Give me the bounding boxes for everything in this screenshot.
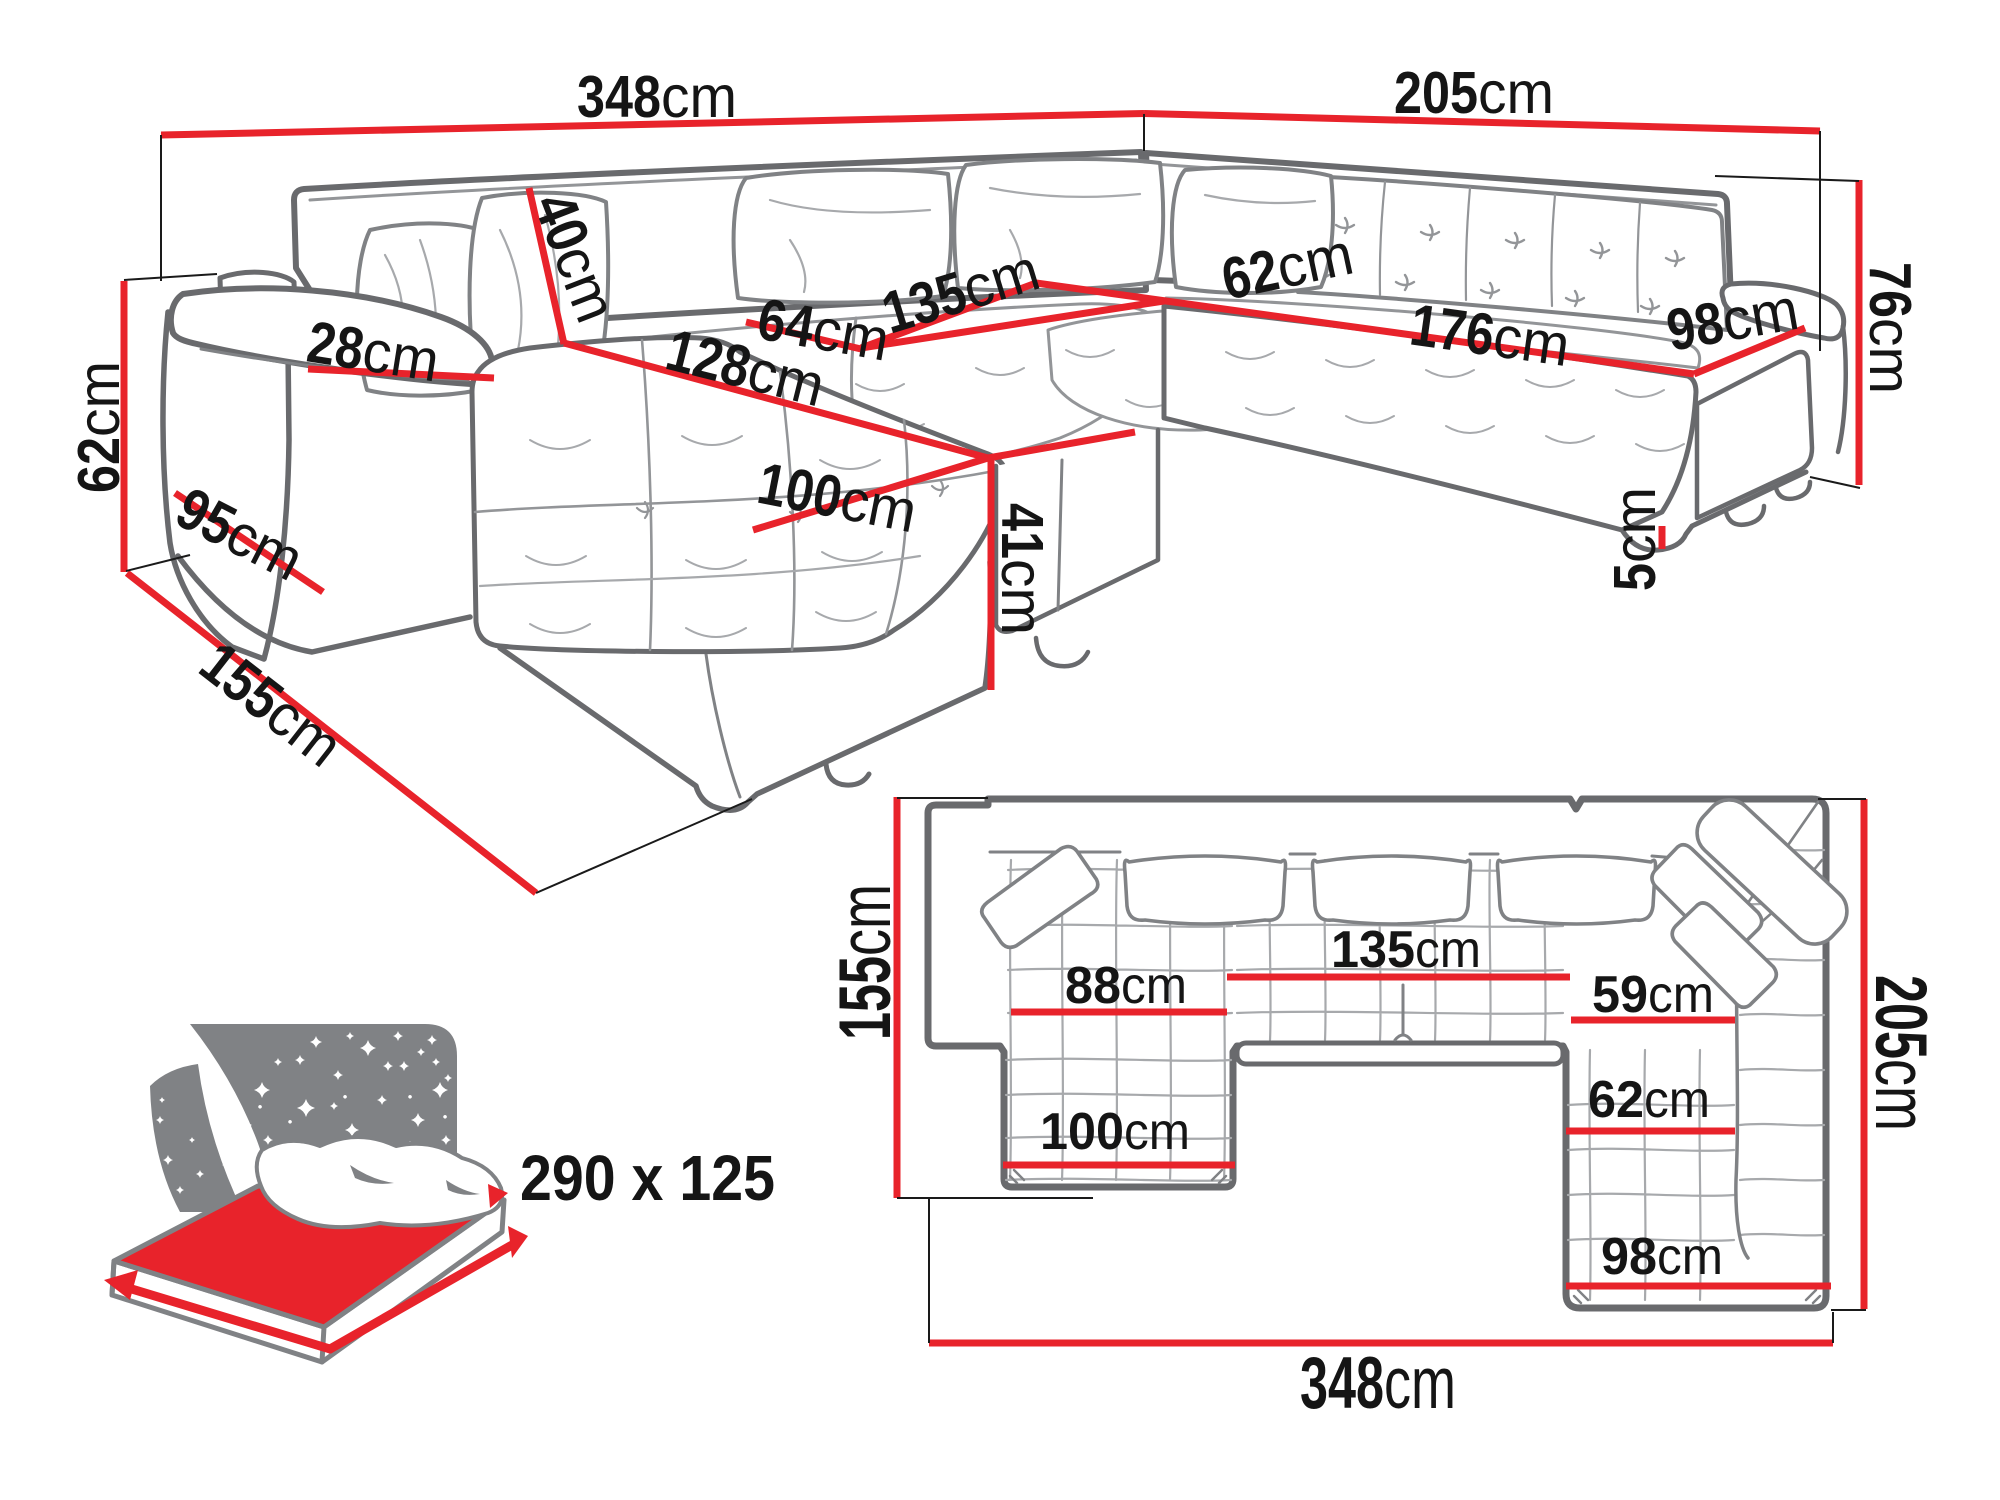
svg-text:88cm: 88cm — [1065, 957, 1187, 1015]
svg-text:155cm: 155cm — [188, 629, 355, 780]
svg-text:155cm: 155cm — [825, 884, 906, 1040]
svg-text:62cm: 62cm — [1588, 1071, 1710, 1129]
svg-text:59cm: 59cm — [1592, 966, 1714, 1024]
svg-text:41cm: 41cm — [989, 503, 1055, 635]
svg-text:348cm: 348cm — [577, 64, 737, 130]
svg-text:205cm: 205cm — [1860, 975, 1941, 1131]
svg-text:98cm: 98cm — [1601, 1228, 1723, 1286]
svg-text:290 x 125: 290 x 125 — [520, 1142, 775, 1214]
svg-text:76cm: 76cm — [1857, 262, 1923, 394]
svg-text:62cm: 62cm — [66, 361, 132, 493]
svg-text:5cm: 5cm — [1602, 487, 1668, 591]
svg-text:348cm: 348cm — [1300, 1343, 1456, 1424]
svg-text:205cm: 205cm — [1394, 60, 1554, 126]
svg-text:135cm: 135cm — [1331, 921, 1481, 979]
svg-text:100cm: 100cm — [1040, 1103, 1190, 1161]
